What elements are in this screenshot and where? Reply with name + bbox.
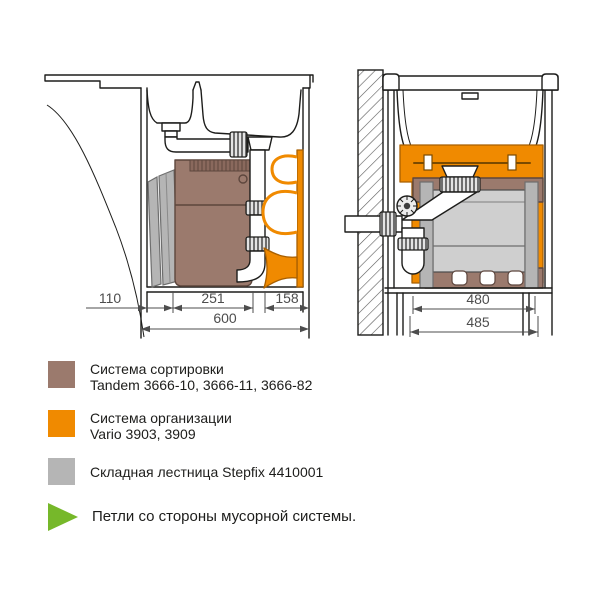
vario-funnel	[264, 248, 297, 288]
dim-251: 251	[201, 290, 225, 306]
dimension-lines-left: 110 251 158 600	[86, 290, 309, 332]
tandem-bin	[175, 160, 252, 286]
page: 110 251 158 600	[0, 0, 600, 600]
bin-lid-ridges	[190, 160, 252, 171]
wall-hatched	[358, 70, 383, 335]
orange-swatch	[48, 410, 75, 437]
drain-nut	[440, 177, 480, 192]
vario-hook	[508, 155, 516, 170]
legend-item-folding-ladder: Складная лестница Stepfix 4410001	[48, 458, 323, 485]
dim-480: 480	[466, 291, 490, 307]
vario-organizer	[263, 150, 303, 288]
legend-line: Складная лестница Stepfix 4410001	[90, 464, 323, 480]
countertop-side	[45, 75, 313, 88]
vario-rail	[297, 150, 303, 287]
valve-knob-center	[404, 203, 410, 209]
diagram-side-section: 110 251 158 600	[40, 60, 320, 345]
dim-485: 485	[466, 314, 490, 330]
dim-110: 110	[99, 290, 122, 306]
legend-line: Петли со стороны мусорной системы.	[92, 509, 356, 525]
door-swing-curve	[47, 105, 144, 337]
legend-item-organizer-system: Система организации Vario 3903, 3909	[48, 410, 232, 442]
base-cutout	[508, 271, 523, 285]
vario-bottle	[272, 156, 297, 183]
gray-swatch	[48, 458, 75, 485]
legend-text: Складная лестница Stepfix 4410001	[90, 464, 323, 480]
legend-line: Система сортировки	[90, 361, 312, 377]
pipe-coupling	[380, 212, 396, 236]
legend-line: Система организации	[90, 410, 232, 426]
green-triangle-icon	[48, 503, 78, 531]
stepfix-ladder	[148, 170, 178, 287]
legend-item-sorting-system: Система сортировки Tandem 3666-10, 3666-…	[48, 361, 312, 393]
legend-text: Система сортировки Tandem 3666-10, 3666-…	[90, 361, 312, 393]
countertop-front	[383, 74, 558, 90]
diagram-front-section: 480 485	[340, 60, 575, 345]
tandem-front	[413, 178, 543, 288]
pipe-coupling	[230, 132, 247, 157]
legend-text: Петли со стороны мусорной системы.	[92, 509, 356, 525]
vario-bottle	[263, 191, 297, 233]
brown-swatch	[48, 361, 75, 388]
legend-text: Система организации Vario 3903, 3909	[90, 410, 232, 442]
dimension-lines-right: 480 485	[410, 291, 538, 337]
base-cutout	[452, 271, 467, 285]
legend-item-hinge-note: Петли со стороны мусорной системы.	[48, 503, 356, 531]
overflow-slot	[462, 93, 478, 99]
vario-hook	[424, 155, 432, 170]
runner-rail	[525, 182, 538, 288]
legend-line: Vario 3903, 3909	[90, 426, 232, 442]
pipe-coupling	[398, 238, 428, 250]
base-cutout	[480, 271, 495, 285]
legend-line: Tandem 3666-10, 3666-11, 3666-82	[90, 377, 312, 393]
dim-158: 158	[275, 290, 299, 306]
dim-600: 600	[213, 310, 237, 326]
